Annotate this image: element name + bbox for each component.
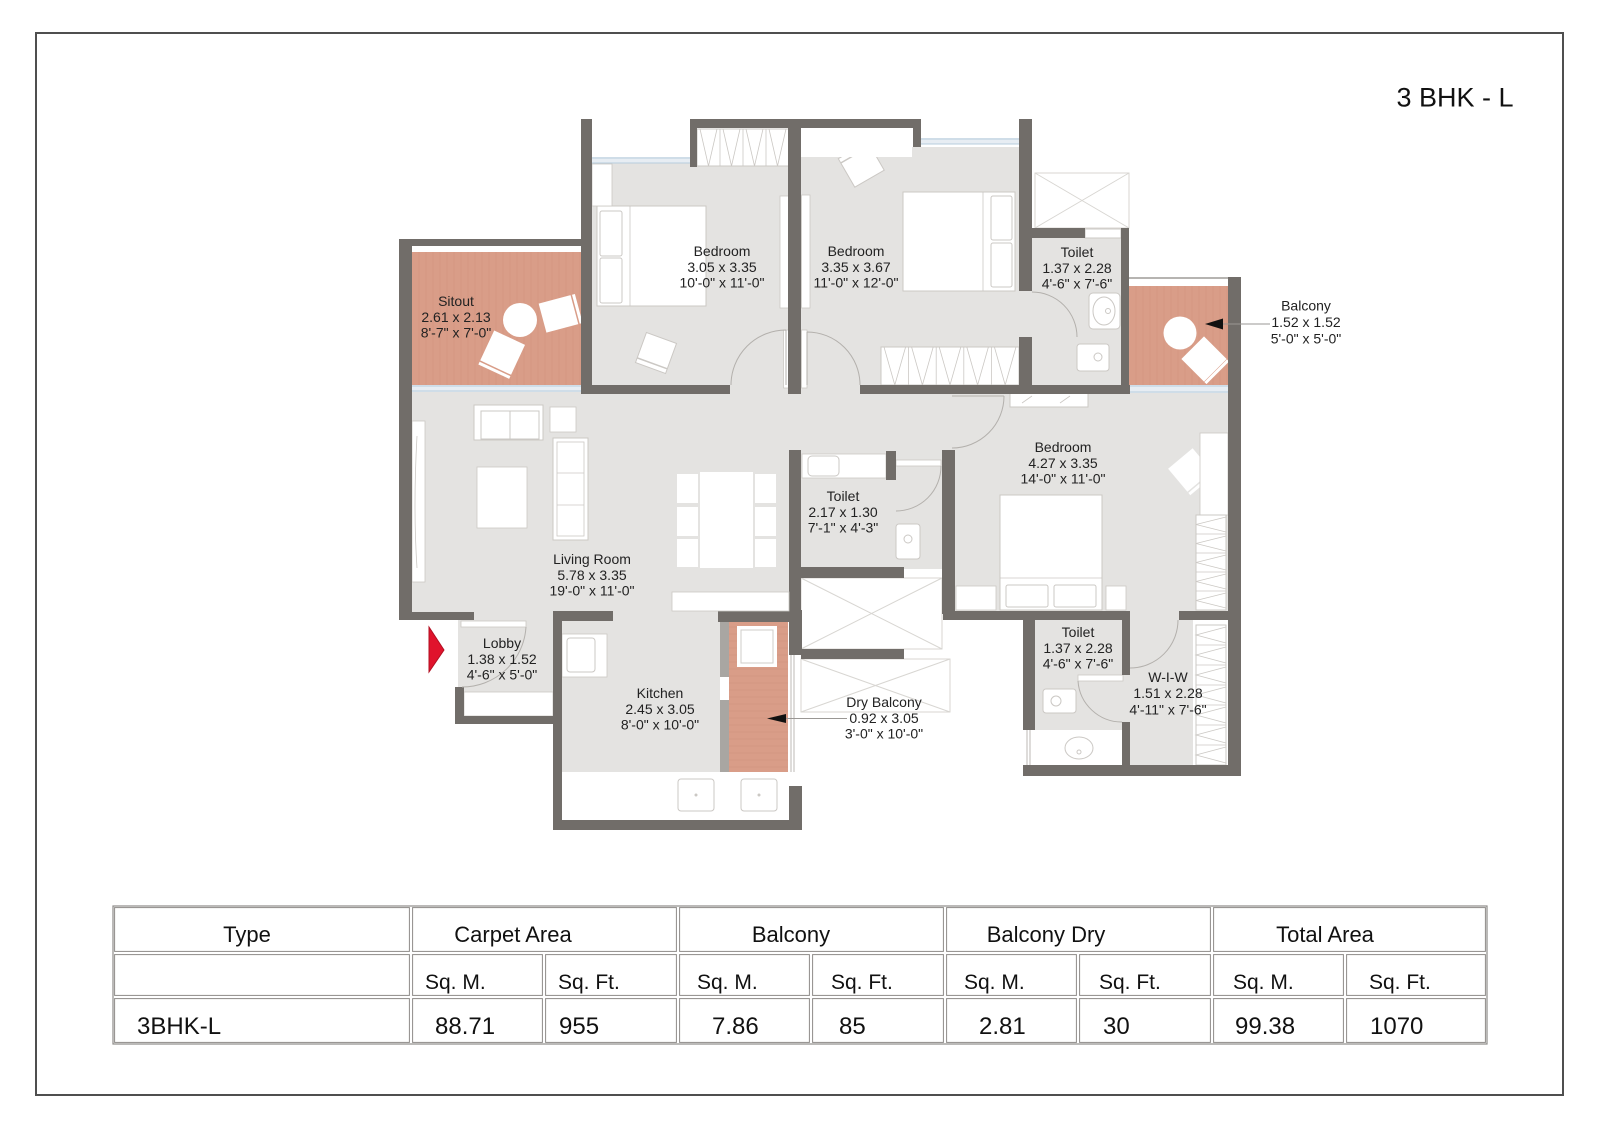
svg-text:Sq. Ft.: Sq. Ft. [1369, 971, 1431, 994]
svg-text:Carpet Area: Carpet Area [454, 922, 572, 947]
svg-text:30: 30 [1103, 1013, 1130, 1040]
svg-text:955: 955 [559, 1013, 599, 1040]
svg-text:Balcony1.52 x 1.525'-0" x 5'-0: Balcony1.52 x 1.525'-0" x 5'-0" [1271, 298, 1342, 347]
svg-text:3 BHK - L: 3 BHK - L [1396, 83, 1513, 113]
svg-text:Sq. M.: Sq. M. [425, 971, 486, 994]
svg-text:Living Room5.78 x 3.3519'-0" x: Living Room5.78 x 3.3519'-0" x 11'-0" [549, 551, 634, 599]
svg-text:88.71: 88.71 [435, 1013, 495, 1040]
svg-text:Sq. M.: Sq. M. [1233, 971, 1294, 994]
svg-text:Sq. M.: Sq. M. [697, 971, 758, 994]
svg-text:85: 85 [839, 1013, 866, 1040]
svg-text:Sq. M.: Sq. M. [964, 971, 1025, 994]
svg-text:1070: 1070 [1370, 1013, 1423, 1040]
svg-text:Sq. Ft.: Sq. Ft. [558, 971, 620, 994]
svg-text:Type: Type [223, 922, 271, 947]
svg-text:3BHK-L: 3BHK-L [137, 1013, 221, 1040]
svg-text:7.86: 7.86 [712, 1013, 759, 1040]
svg-text:Dry Balcony0.92 x 3.053'-0" x: Dry Balcony0.92 x 3.053'-0" x 10'-0" [845, 694, 923, 742]
svg-text:2.81: 2.81 [979, 1013, 1026, 1040]
svg-text:Sq. Ft.: Sq. Ft. [831, 971, 893, 994]
svg-text:Balcony Dry: Balcony Dry [987, 922, 1106, 947]
svg-text:Balcony: Balcony [752, 922, 830, 947]
svg-text:Total Area: Total Area [1276, 922, 1375, 947]
svg-text:Sq. Ft.: Sq. Ft. [1099, 971, 1161, 994]
svg-text:99.38: 99.38 [1235, 1013, 1295, 1040]
